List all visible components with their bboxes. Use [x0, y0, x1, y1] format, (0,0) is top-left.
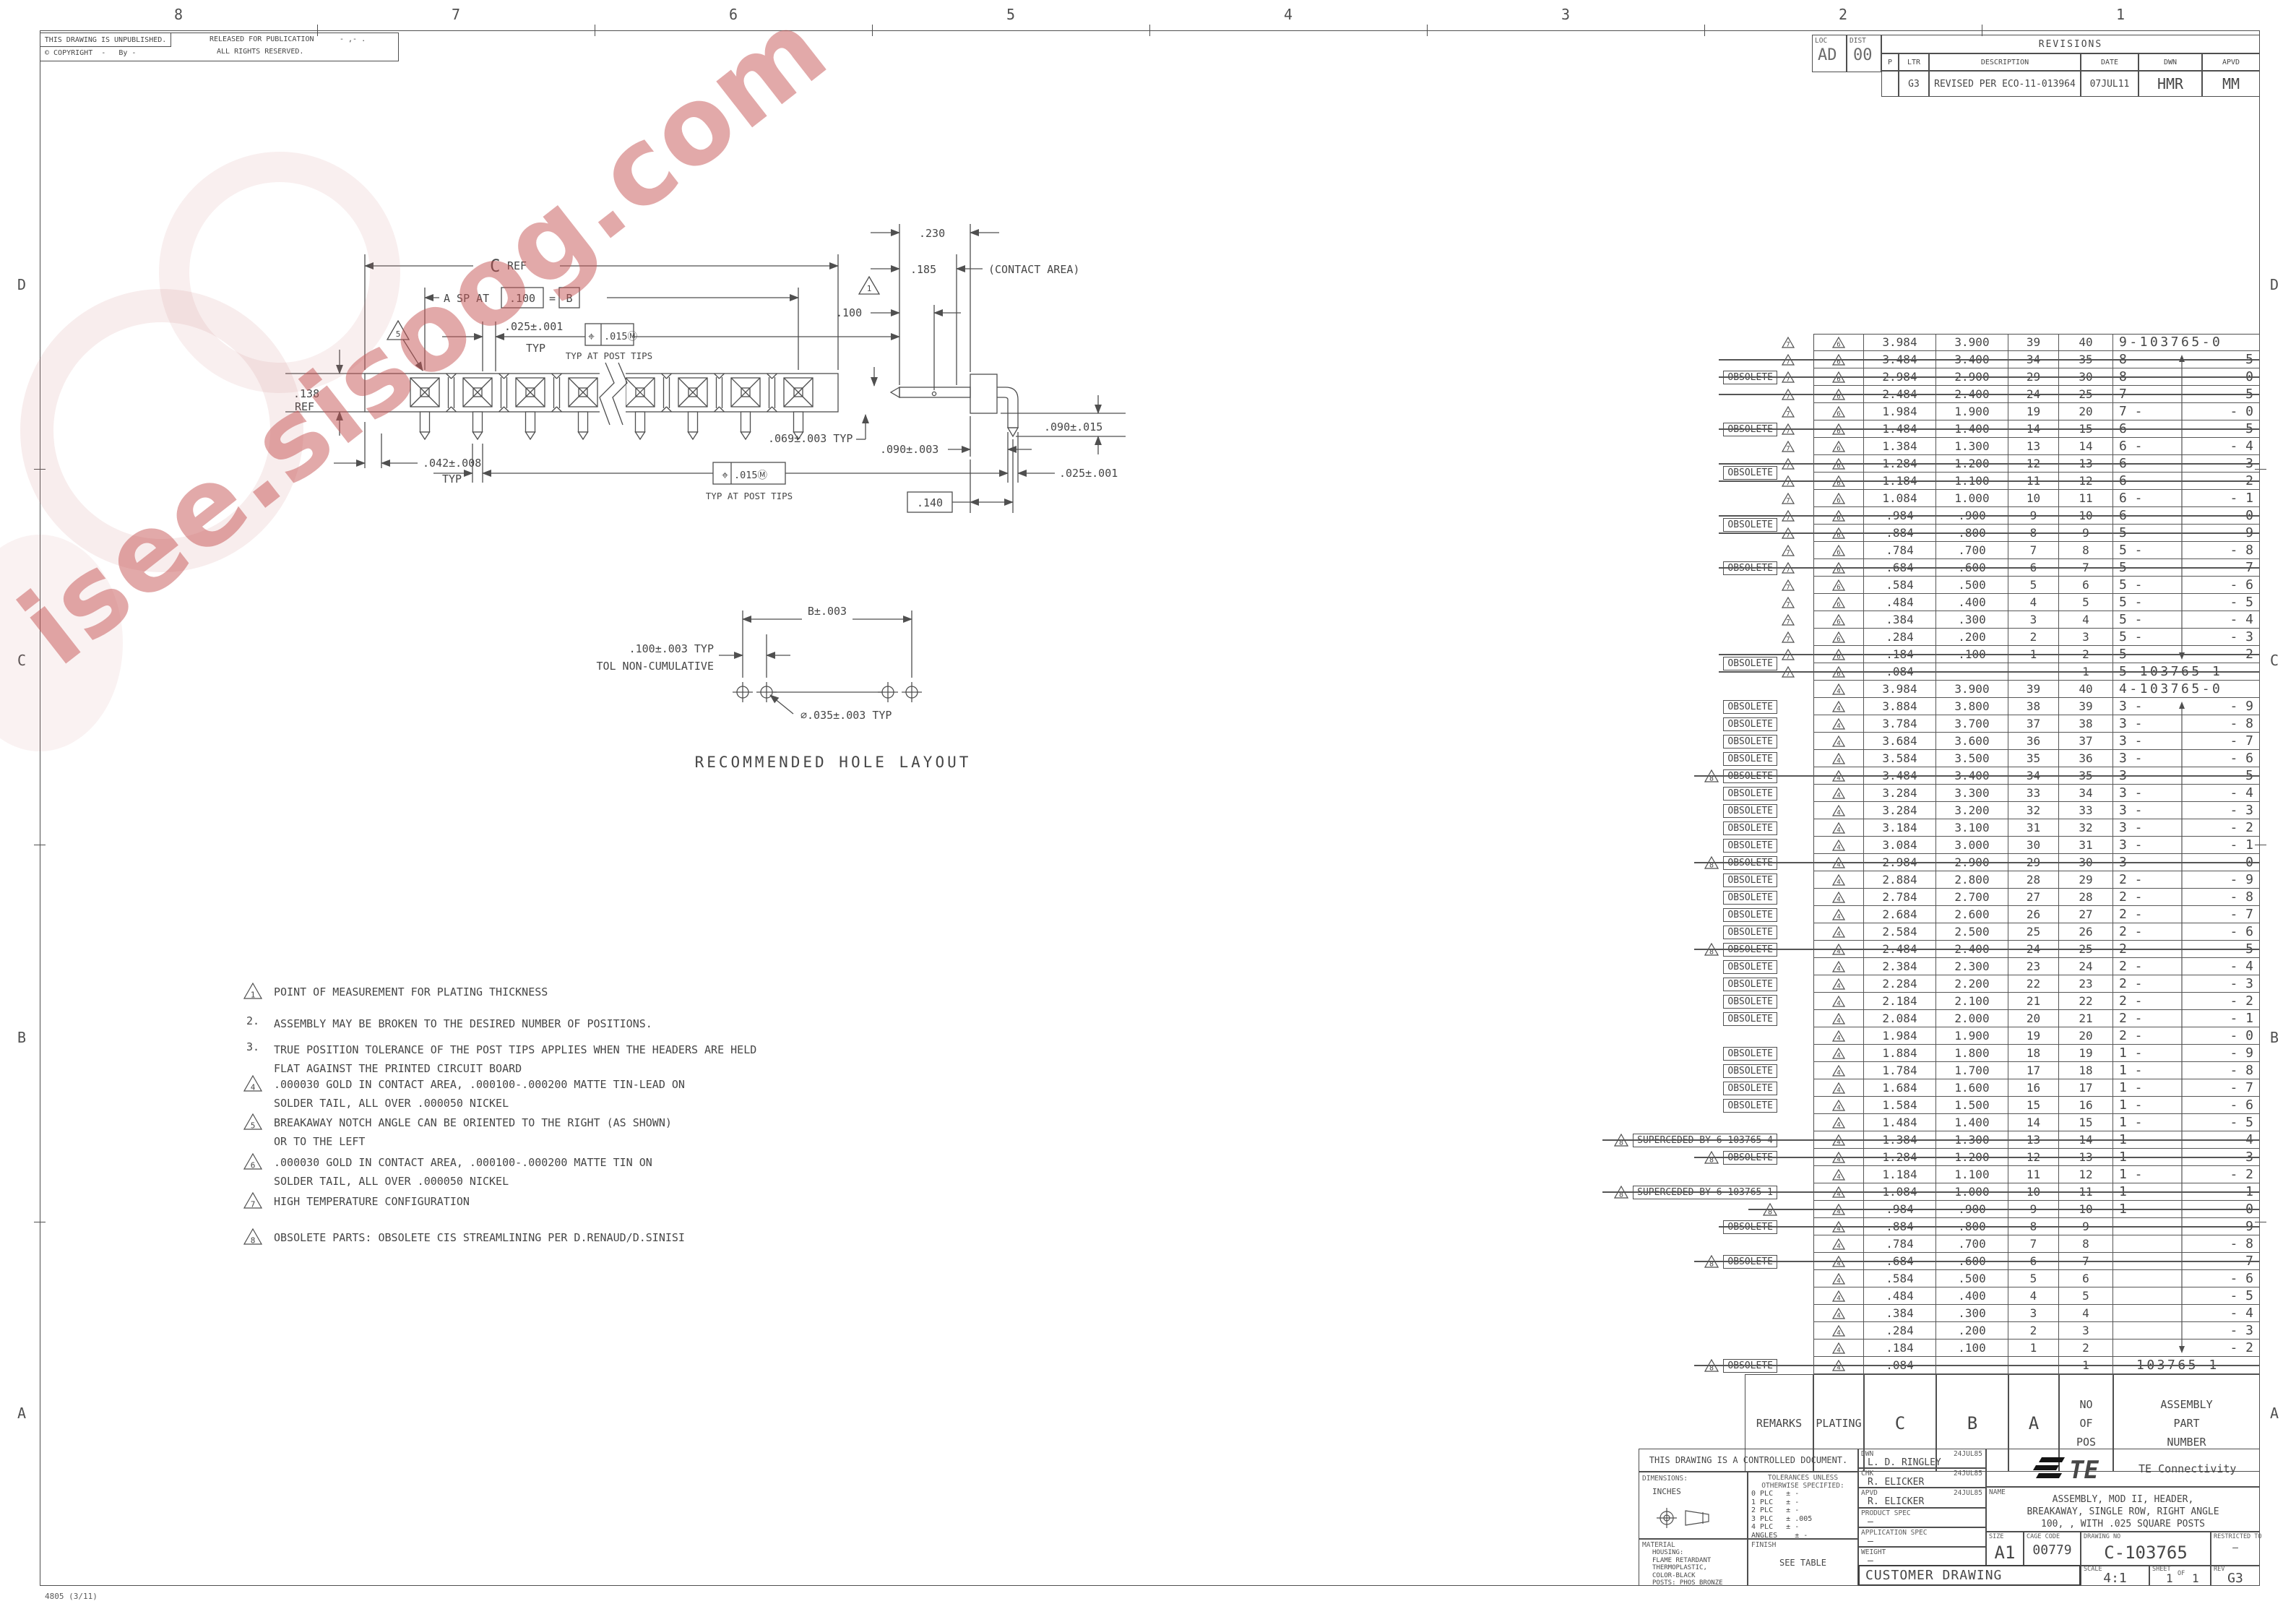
- part-number-span-arrow: [2177, 702, 2187, 1353]
- part-prefix: 2 -: [2113, 872, 2143, 887]
- plating-note4-icon: 4: [1832, 701, 1845, 712]
- plating-cell: 4: [1813, 1079, 1864, 1097]
- remark-box: OBSOLETE: [1723, 1064, 1777, 1078]
- svg-text:4: 4: [1837, 809, 1840, 816]
- b-cell: 2.000: [1936, 1010, 2008, 1027]
- b-cell: 1.400: [1936, 1114, 2008, 1131]
- hole-tol-note: TOL NON-CUMULATIVE: [596, 660, 714, 673]
- c-cell: 3.084: [1864, 837, 1936, 854]
- remark-note-icon-wrap: 7: [1782, 649, 1795, 663]
- c-cell: 2.184: [1864, 993, 1936, 1010]
- plating-note6-icon: 6: [1832, 406, 1845, 418]
- c-cell: .484: [1864, 1287, 1936, 1305]
- remark: OBSOLETE: [1723, 786, 1777, 801]
- part-prefix: 1 -: [2113, 1045, 2143, 1061]
- plating-note4-icon: 4: [1832, 892, 1845, 903]
- note-item: 1POINT OF MEASUREMENT FOR PLATING THICKN…: [242, 983, 548, 1001]
- a-cell: 4: [2008, 594, 2059, 611]
- plating-cell: 4: [1813, 1166, 1864, 1183]
- strike-line: [1602, 1191, 2259, 1192]
- note-marker: 2.: [242, 1014, 264, 1027]
- a-cell: 33: [2008, 785, 2059, 802]
- dim-hole-b: B±.003: [808, 605, 847, 618]
- rev-col-apvd: APVD: [2202, 53, 2260, 71]
- front-view: [285, 224, 1126, 714]
- b-cell: .400: [1936, 594, 2008, 611]
- plating-cell: 4: [1813, 923, 1864, 941]
- remark-box: OBSOLETE: [1723, 1012, 1777, 1026]
- dim-025-side: .025±.001: [1059, 467, 1118, 480]
- cell-sheet: SHEET1OF1: [2149, 1565, 2211, 1586]
- pos-cell: 38: [2059, 715, 2113, 733]
- tol-row: 3 PLC ± .005: [1751, 1515, 1855, 1524]
- finish-cell: FINISHSEE TABLE: [1748, 1539, 1858, 1586]
- te-logo-icon: TE: [2029, 1454, 2123, 1483]
- plating-cell: 4: [1813, 1097, 1864, 1114]
- strike-line: [1719, 671, 2259, 672]
- pos-cell: 5: [2059, 594, 2113, 611]
- part-suffix: - 6: [2230, 751, 2259, 766]
- name-line: BREAKAWAY, SINGLE ROW, RIGHT ANGLE: [1987, 1506, 2259, 1518]
- part-suffix: - 1: [2230, 491, 2259, 506]
- plating-note4-icon: 4: [1832, 1273, 1845, 1285]
- c-cell: 3.284: [1864, 785, 1936, 802]
- note4-triangle-icon: 4: [243, 1075, 262, 1092]
- pos-cell: 6: [2059, 577, 2113, 594]
- dim-100: .100: [836, 306, 862, 319]
- plating-cell: 4: [1813, 906, 1864, 923]
- b-cell: 1.000: [1936, 490, 2008, 507]
- zone-right-D: D: [2270, 276, 2279, 293]
- dimensions-label: DIMENSIONS:: [1642, 1475, 1688, 1483]
- svg-text:7: 7: [1786, 584, 1790, 592]
- svg-text:4: 4: [1837, 1295, 1840, 1302]
- note1-marker: 1: [867, 284, 872, 293]
- note-marker: 1: [242, 983, 264, 999]
- c-cell: 2.884: [1864, 871, 1936, 889]
- remark-note-icon-wrap: 7: [1782, 423, 1795, 438]
- note-line: .000030 GOLD IN CONTACT AREA, .000100-.0…: [274, 1153, 652, 1172]
- pos-cell: 20: [2059, 1027, 2113, 1045]
- note-line: OBSOLETE PARTS: OBSOLETE CIS STREAMLININ…: [274, 1228, 685, 1247]
- svg-text:4: 4: [1837, 1312, 1840, 1319]
- b-cell: .200: [1936, 629, 2008, 646]
- note-marker: 6: [242, 1153, 264, 1170]
- plating-cell: 6: [1813, 629, 1864, 646]
- part-suffix: - 9: [2230, 1045, 2259, 1061]
- sheet-value: 1: [2166, 1571, 2173, 1585]
- material-line: HOUSING:: [1652, 1549, 1744, 1557]
- tol-row: 4 PLC ± -: [1751, 1523, 1855, 1532]
- part-prefix: 3 -: [2113, 716, 2143, 731]
- rev-value-description: REVISED PER ECO-11-013964: [1929, 71, 2081, 97]
- svg-text:TE: TE: [2069, 1456, 2099, 1483]
- name-cell: NAMEASSEMBLY, MOD II, HEADER,BREAKAWAY, …: [1986, 1487, 2260, 1532]
- svg-text:4: 4: [1837, 1329, 1840, 1337]
- dim-100-box: .100: [509, 292, 535, 305]
- a-cell: 11: [2008, 1166, 2059, 1183]
- spec-cell-chk: CHK24JUL85R. ELICKER: [1858, 1468, 1986, 1488]
- a-cell: 2: [2008, 629, 2059, 646]
- part-suffix: - 2: [2230, 820, 2259, 835]
- dim-138-ref: REF: [295, 400, 314, 413]
- dim-hole-dia: ⌀.035±.003 TYP: [800, 709, 892, 722]
- pos-cell: 27: [2059, 906, 2113, 923]
- plating-cell: 6: [1813, 611, 1864, 629]
- part-suffix: - 6: [2230, 1271, 2259, 1286]
- mechanical-views: C REF A SP AT .100 = B .025±.001 TYP ⌖ .…: [0, 0, 1589, 903]
- remark-box: OBSOLETE: [1723, 735, 1777, 749]
- b-cell: .100: [1936, 1340, 2008, 1357]
- c-cell: .584: [1864, 577, 1936, 594]
- pos-cell: 4: [2059, 611, 2113, 629]
- svg-text:7: 7: [1786, 411, 1790, 418]
- c-cell: .784: [1864, 1235, 1936, 1253]
- a-cell: 36: [2008, 733, 2059, 750]
- plating-note4-icon: 4: [1832, 996, 1845, 1007]
- part-number-cell: 9-103765-0: [2113, 334, 2260, 351]
- svg-text:4: 4: [1837, 983, 1840, 990]
- c-cell: 1.384: [1864, 438, 1936, 455]
- a-cell: 28: [2008, 871, 2059, 889]
- remark: OBSOLETE: [1723, 925, 1777, 939]
- plating-cell: 4: [1813, 889, 1864, 906]
- b-cell: 3.800: [1936, 698, 2008, 715]
- b-cell: .300: [1936, 1305, 2008, 1322]
- remark-box: OBSOLETE: [1723, 518, 1777, 532]
- plating-cell: 4: [1813, 1340, 1864, 1357]
- plating-note4-icon: 4: [1832, 1030, 1845, 1042]
- svg-text:1: 1: [251, 991, 256, 1000]
- a-cell: 30: [2008, 837, 2059, 854]
- units-label: INCHES: [1652, 1487, 1681, 1496]
- c-cell: .284: [1864, 1322, 1936, 1340]
- note7-triangle-icon: 7: [1782, 597, 1795, 608]
- cell-drawing_no: DRAWING NOC-103765: [2081, 1532, 2211, 1566]
- svg-text:6: 6: [251, 1161, 256, 1170]
- note5-marker: 5: [396, 329, 401, 339]
- b-cell: 1.900: [1936, 1027, 2008, 1045]
- spec-cell-application_spec: APPLICATION SPEC—: [1858, 1527, 1986, 1547]
- plating-cell: 6: [1813, 334, 1864, 351]
- remark-box: OBSOLETE: [1723, 978, 1777, 991]
- a-cell: 19: [2008, 403, 2059, 420]
- customer-drawing-box: CUSTOMER DRAWING: [1858, 1565, 2081, 1586]
- plating-note4-icon: 4: [1832, 753, 1845, 764]
- b-cell: 3.300: [1936, 785, 2008, 802]
- part-prefix: 1 -: [2113, 1115, 2143, 1130]
- note-item: 3.TRUE POSITION TOLERANCE OF THE POST TI…: [242, 1040, 756, 1078]
- part-number-cell: 4-103765-0: [2113, 681, 2260, 698]
- revisions-title: REVISIONS: [1881, 35, 2260, 53]
- svg-text:4: 4: [1837, 965, 1840, 972]
- svg-text:4: 4: [1837, 896, 1840, 903]
- part-suffix: - 5: [2230, 1115, 2259, 1130]
- plating-cell: 4: [1813, 802, 1864, 819]
- remark-note-icon-wrap: 7: [1782, 579, 1795, 594]
- zone-top-1: 1: [2116, 6, 2125, 23]
- part-number-span-arrow: [2177, 355, 2187, 660]
- part-prefix: 2 -: [2113, 959, 2143, 974]
- plating-cell: 4: [1813, 715, 1864, 733]
- zone-left-B: B: [17, 1029, 26, 1046]
- remark-note-icon-wrap: 7: [1782, 597, 1795, 611]
- b-cell: .400: [1936, 1287, 2008, 1305]
- c-cell: .384: [1864, 1305, 1936, 1322]
- product_spec-value: —: [1868, 1517, 1873, 1527]
- rev-value-apvd: MM: [2202, 71, 2260, 97]
- remark: OBSOLETE: [1723, 465, 1777, 480]
- plating-cell: 4: [1813, 1062, 1864, 1079]
- spec-cell-weight: WEIGHT—: [1858, 1547, 1986, 1566]
- note-marker: 3.: [242, 1040, 264, 1053]
- side-view: [891, 374, 1018, 436]
- plating-note4-icon: 4: [1832, 718, 1845, 730]
- part-suffix: - 3: [2230, 629, 2259, 644]
- a-cell: 38: [2008, 698, 2059, 715]
- dim-090-015: .090±.015: [1044, 420, 1102, 433]
- name-line: 100, , WITH .025 SQUARE POSTS: [1987, 1518, 2259, 1530]
- doc-type: CUSTOMER DRAWING: [1860, 1568, 2002, 1583]
- svg-text:4: 4: [1837, 1104, 1840, 1111]
- a-cell: 2: [2008, 1322, 2059, 1340]
- b-cell: .200: [1936, 1322, 2008, 1340]
- pos-cell: 40: [2059, 334, 2113, 351]
- pos-cell: 20: [2059, 403, 2113, 420]
- a-cell: 7: [2008, 542, 2059, 559]
- remark: OBSOLETE: [1723, 517, 1777, 532]
- a-cell: 7: [2008, 1235, 2059, 1253]
- b-cell: 1.700: [1936, 1062, 2008, 1079]
- tol-label2: OTHERWISE SPECIFIED:: [1751, 1482, 1855, 1490]
- remark: OBSOLETE: [1723, 907, 1777, 922]
- part-prefix: 3 -: [2113, 785, 2143, 801]
- remark-box: OBSOLETE: [1723, 960, 1777, 974]
- svg-text:7: 7: [251, 1200, 256, 1209]
- part-prefix: 3 -: [2113, 699, 2143, 714]
- part-suffix: - 4: [2230, 1306, 2259, 1321]
- pos-cell: 24: [2059, 958, 2113, 975]
- remark-note-icon-wrap: 7: [1782, 406, 1795, 420]
- part-suffix: - 8: [2230, 1236, 2259, 1251]
- b-cell: 2.200: [1936, 975, 2008, 993]
- part-suffix: - 5: [2230, 595, 2259, 610]
- remark-note-icon-wrap: 7: [1782, 631, 1795, 646]
- remark-note-icon-wrap: 7: [1782, 475, 1795, 490]
- pos-cell: 34: [2059, 785, 2113, 802]
- plating-note4-icon: 4: [1832, 1290, 1845, 1302]
- svg-text:7: 7: [1786, 498, 1790, 505]
- c-cell: 2.084: [1864, 1010, 1936, 1027]
- svg-text:4: 4: [1837, 1173, 1840, 1181]
- note5-triangle-icon: 5: [243, 1113, 262, 1130]
- plating-cell: 4: [1813, 1114, 1864, 1131]
- dim-042: .042±.008: [423, 457, 481, 470]
- a-cell: 17: [2008, 1062, 2059, 1079]
- a-cell: 27: [2008, 889, 2059, 906]
- loc-value: AD: [1818, 46, 1837, 64]
- remark: OBSOLETE: [1723, 1064, 1777, 1078]
- svg-text:4: 4: [251, 1083, 256, 1092]
- c-cell: 2.784: [1864, 889, 1936, 906]
- remark-note-icon-wrap: 7: [1782, 389, 1795, 403]
- part-suffix: - 0: [2230, 404, 2259, 419]
- a-cell: 1: [2008, 1340, 2059, 1357]
- plating-cell: 4: [1813, 958, 1864, 975]
- note7-triangle-icon: 7: [1782, 631, 1795, 643]
- part-suffix: - 8: [2230, 889, 2259, 905]
- part-suffix: - 4: [2230, 439, 2259, 454]
- svg-text:4: 4: [1837, 705, 1840, 712]
- part-suffix: - 3: [2230, 976, 2259, 991]
- part-suffix: - 8: [2230, 543, 2259, 558]
- header-line: NO: [2079, 1398, 2092, 1411]
- plating-note4-icon: 4: [1832, 1100, 1845, 1111]
- svg-text:4: 4: [1837, 1000, 1840, 1007]
- svg-text:4: 4: [1837, 1243, 1840, 1250]
- plating-note4-icon: 4: [1832, 1013, 1845, 1024]
- plating-cell: 4: [1813, 681, 1864, 698]
- material-lines: HOUSING:FLAME RETARDANTTHERMOPLASTIC,COL…: [1642, 1549, 1744, 1587]
- note-item: 4.000030 GOLD IN CONTACT AREA, .000100-.…: [242, 1075, 685, 1113]
- part-prefix: 2 -: [2113, 1028, 2143, 1043]
- part-prefix: 5 -: [2113, 577, 2143, 592]
- chk-value: R. ELICKER: [1868, 1477, 1924, 1488]
- fcf-value: .015Ⓜ: [604, 331, 638, 342]
- note-item: 2.ASSEMBLY MAY BE BROKEN TO THE DESIRED …: [242, 1014, 652, 1033]
- remark-box: OBSOLETE: [1723, 1047, 1777, 1061]
- strike-line: [1694, 1261, 2259, 1261]
- plating-note4-icon: 4: [1832, 874, 1845, 886]
- remark-box: OBSOLETE: [1723, 657, 1777, 670]
- remark: OBSOLETE: [1723, 1081, 1777, 1095]
- finish-label: FINISH: [1751, 1541, 1855, 1549]
- dim-c-ref-word: REF: [507, 259, 527, 272]
- dim-eq: =: [549, 292, 556, 305]
- svg-text:4: 4: [1837, 844, 1840, 851]
- name-line: ASSEMBLY, MOD II, HEADER,: [1987, 1493, 2259, 1506]
- dim-138: .138: [293, 387, 319, 400]
- plating-note4-icon: 4: [1832, 1238, 1845, 1250]
- dist-label: DIST: [1850, 37, 1866, 45]
- header-line: ASSEMBLY: [2160, 1398, 2212, 1411]
- plating-cell: 4: [1813, 1270, 1864, 1287]
- b-cell: 1.800: [1936, 1045, 2008, 1062]
- part-suffix: - 2: [2230, 1340, 2259, 1355]
- svg-text:6: 6: [1837, 584, 1840, 591]
- controlled-doc-note: THIS DRAWING IS A CONTROLLED DOCUMENT.: [1639, 1449, 1858, 1472]
- part-prefix: 7 -: [2113, 404, 2143, 419]
- plating-note6-icon: 6: [1832, 631, 1845, 643]
- plating-note4-icon: 4: [1832, 788, 1845, 799]
- pos-cell: 12: [2059, 1166, 2113, 1183]
- svg-text:4: 4: [1837, 913, 1840, 920]
- plating-cell: 4: [1813, 1287, 1864, 1305]
- svg-text:4: 4: [1837, 827, 1840, 834]
- c-cell: 1.784: [1864, 1062, 1936, 1079]
- remark-box: OBSOLETE: [1723, 1099, 1777, 1113]
- a-cell: 21: [2008, 993, 2059, 1010]
- plating-note4-icon: 4: [1832, 1065, 1845, 1077]
- b-cell: 2.500: [1936, 923, 2008, 941]
- a-cell: 4: [2008, 1287, 2059, 1305]
- pos-cell: 22: [2059, 993, 2113, 1010]
- plating-cell: 6: [1813, 490, 1864, 507]
- remark-note-icon-wrap: 7: [1782, 493, 1795, 507]
- part-suffix: - 4: [2230, 785, 2259, 801]
- plating-note4-icon: 4: [1832, 1169, 1845, 1181]
- plating-note4-icon: 4: [1832, 1325, 1845, 1337]
- dwn_date: 24JUL85: [1954, 1450, 1982, 1458]
- b-cell: .300: [1936, 611, 2008, 629]
- remark-box: OBSOLETE: [1723, 908, 1777, 922]
- pos-cell: 15: [2059, 1114, 2113, 1131]
- svg-text:4: 4: [1837, 1087, 1840, 1094]
- part-prefix: 2 -: [2113, 924, 2143, 939]
- remark-note-icon-wrap: 7: [1782, 545, 1795, 559]
- rev-value-dwn: HMR: [2139, 71, 2202, 97]
- part-prefix: 2 -: [2113, 907, 2143, 922]
- svg-text:4: 4: [1837, 1277, 1840, 1285]
- plating-cell: 4: [1813, 871, 1864, 889]
- tol-row: 2 PLC ± -: [1751, 1506, 1855, 1515]
- tolerances-cell: TOLERANCES UNLESSOTHERWISE SPECIFIED:0 P…: [1748, 1472, 1858, 1539]
- plating-note6-icon: 6: [1832, 337, 1845, 348]
- dim-090-003: .090±.003: [880, 443, 938, 456]
- note-line: HIGH TEMPERATURE CONFIGURATION: [274, 1192, 470, 1211]
- a-cell: 26: [2008, 906, 2059, 923]
- drawing-sheet: 87654321DDCCBBAA THIS DRAWING IS UNPUBLI…: [0, 0, 2296, 1622]
- part-suffix: - 7: [2230, 733, 2259, 749]
- part-prefix: 2 -: [2113, 993, 2143, 1009]
- plating-cell: 4: [1813, 819, 1864, 837]
- svg-text:7: 7: [1786, 550, 1790, 557]
- remark-box: OBSOLETE: [1723, 821, 1777, 835]
- c-cell: 3.184: [1864, 819, 1936, 837]
- b-cell: .500: [1936, 1270, 2008, 1287]
- b-cell: 2.600: [1936, 906, 2008, 923]
- plating-note4-icon: 4: [1832, 683, 1845, 695]
- header-line: NUMBER: [2167, 1436, 2206, 1449]
- dim-025-typ: .025±.001: [504, 320, 563, 333]
- b-cell: 1.500: [1936, 1097, 2008, 1114]
- remark: OBSOLETE: [1723, 717, 1777, 731]
- svg-text:7: 7: [1786, 342, 1790, 349]
- svg-text:6: 6: [1837, 549, 1840, 556]
- remark-box: OBSOLETE: [1723, 995, 1777, 1009]
- material-label: MATERIAL: [1642, 1541, 1744, 1549]
- remark-box: OBSOLETE: [1723, 700, 1777, 714]
- part-prefix: 3 -: [2113, 803, 2143, 818]
- note-item: 8OBSOLETE PARTS: OBSOLETE CIS STREAMLINI…: [242, 1228, 685, 1247]
- note-number: 3.: [246, 1040, 259, 1053]
- part-prefix: 5 -: [2113, 612, 2143, 627]
- part-number: 9-103765-0: [2113, 335, 2222, 350]
- remark-note-icon-wrap: 7: [1782, 614, 1795, 629]
- plating-cell: 6: [1813, 403, 1864, 420]
- remark-box: OBSOLETE: [1723, 839, 1777, 853]
- remark-box: OBSOLETE: [1723, 466, 1777, 480]
- note7-triangle-icon: 7: [1782, 493, 1795, 504]
- b-cell: 3.000: [1936, 837, 2008, 854]
- note-item: 5BREAKAWAY NOTCH ANGLE CAN BE ORIENTED T…: [242, 1113, 672, 1151]
- dimensions-cell: DIMENSIONS:INCHES: [1639, 1472, 1748, 1539]
- svg-text:8: 8: [251, 1236, 256, 1246]
- c-cell: 2.684: [1864, 906, 1936, 923]
- pos-cell: 23: [2059, 975, 2113, 993]
- strike-line: [1602, 1139, 2259, 1140]
- pos-cell: 39: [2059, 698, 2113, 715]
